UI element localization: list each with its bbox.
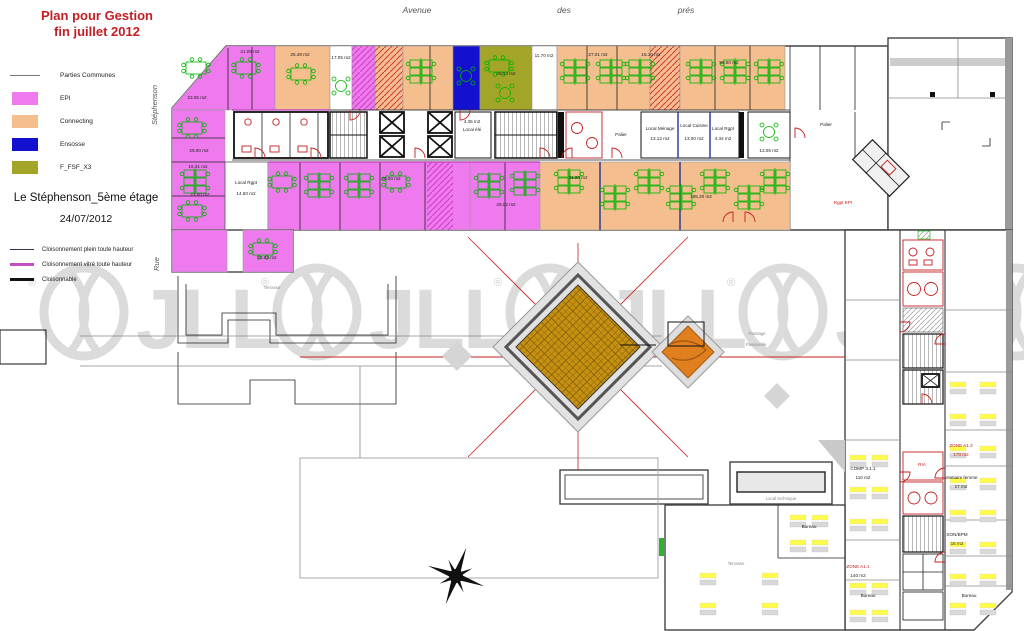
area-label: 25.13 m2 [496,71,516,76]
area-label: 13.00 m2 [684,136,704,141]
legend-item-ffsfx3: F_FSF_X3 [8,156,168,179]
area-label: Terrasse [728,561,745,566]
area-label: 21.05 m2 [240,49,260,54]
color-swatch [12,161,38,174]
stairs [903,334,943,368]
street-des: des [557,5,571,15]
registered-mark: ® [727,277,735,289]
local-rooms [641,112,739,158]
area-label: 17.05 m2 [331,55,351,60]
plan-title: Plan pour Gestion fin juillet 2012 [22,8,172,41]
area-label: COMP 3.1.1 [850,466,876,471]
room-ffsfx3 [480,46,532,110]
line-swatch [10,249,34,250]
small-gray-diamond [764,383,790,409]
area-label: 31.20 m2 [568,175,588,180]
area-label: 17 m2 [955,484,968,489]
top-wing [172,46,888,230]
building-title-block: Le Stéphenson_5ème étage 24/07/2012 [6,192,166,225]
legend-label: Parties Communes [60,72,115,79]
area-label: Bureau [861,593,876,598]
room-connecting-open-space [540,162,790,230]
area-label: Vestiaire femme [945,475,978,480]
legend-label: Ensosse [60,141,85,148]
left-wing [172,230,293,272]
area-label: 14.50 m2 [236,191,256,196]
area-label: ZONE A1.1 [846,564,870,569]
area-label: 11.70 m2 [535,53,554,58]
area-label: Local Rgpt [235,180,258,185]
top-right-block [888,38,1012,230]
legend-item-cloisonnement-plein: Cloisonnement plein toute hauteur [10,242,190,257]
area-label: Bureau [962,593,977,598]
line-swatch [10,263,34,266]
area-label: Local Cuisine [680,123,708,128]
room-epi [172,46,275,110]
building-name: Le Stéphenson_5ème étage [6,192,166,204]
elevator [428,136,452,157]
area-label: 16.10 m2 [641,52,661,57]
street-avenue: Avenue [402,5,432,15]
legend-label: Connecting [60,118,93,125]
watermark-text: JLL [369,272,512,366]
area-label: 23.05 m2 [187,95,207,100]
area-label: 110 m2 [856,475,871,480]
legend-label: Cloisonnement vitré toute hauteur [42,262,132,268]
partition-legend: Cloisonnement plein toute hauteur Cloiso… [10,242,190,287]
line-swatch [10,75,40,76]
area-label: Palier [820,122,832,127]
bottom-center-block [560,462,845,630]
legend-item-cloisonnable: Cloisonnable [10,272,190,287]
plan-date: 24/07/2012 [6,213,166,225]
elevator [428,112,452,133]
area-label: 4.35 m2 [464,119,481,124]
area-label: 25.48 m2 [290,52,310,57]
area-label: 28.02 m2 [496,202,516,207]
area-label: Local Rgpt [712,126,735,131]
registered-mark: ® [494,277,502,289]
color-swatch [12,115,38,128]
area-label: Terrasse [264,285,281,290]
legend-item-connecting: Connecting [8,110,168,133]
legend-label: Cloisonnement plein toute hauteur [42,247,133,253]
street-pres: prés [677,5,695,15]
area-label: Passage [748,331,766,336]
area-label: ZONE A1.3 [949,443,973,448]
color-swatch [12,138,38,151]
zone-legend: Parties Communes EPI Connecting Ensosse … [8,64,168,179]
legend-label: Cloisonnable [42,277,77,283]
area-label: 140 m2 [850,573,866,578]
area-label: Local élé [463,127,482,132]
area-label: Bureau [802,524,817,529]
floor-plan-page: JLL JLL JLL JLL ® ® ® ® ® Avenue des pré… [0,0,1024,631]
legend-item-parties-communes: Parties Communes [8,64,168,87]
elevator [380,136,404,157]
area-label: Passerelle [746,342,767,347]
right-wing [845,230,1012,630]
area-label: 170 m2 [953,452,969,457]
area-label: 13.05 m2 [759,148,779,153]
legend-item-epi: EPI [8,87,168,110]
area-label: 16 m2 [951,541,964,546]
legend-label: F_FSF_X3 [60,164,91,171]
area-label: 16.31 m2 [188,164,208,169]
area-label: Local Ménage [646,126,675,131]
area-label: 4.34 m2 [715,136,732,141]
plan-title-line2: fin juillet 2012 [22,24,172,40]
compass-icon [427,547,486,606]
line-swatch [10,278,34,281]
area-label: 23.02 m2 [257,255,277,260]
area-label: 21.00 m2 [190,192,210,197]
area-label: 25.00 m2 [381,176,401,181]
stairs [903,516,943,552]
legend-label: EPI [60,95,70,102]
color-swatch [12,92,38,105]
area-label: RIA [918,462,927,467]
plan-title-line1: Plan pour Gestion [22,8,172,24]
area-label: 165.20 m2 [690,194,712,199]
area-label: 29.00 m2 [189,148,209,153]
area-label: 50.60 m2 [719,60,739,65]
area-label: Palier [615,132,627,137]
legend-item-ensosse: Ensosse [8,133,168,156]
area-label: 13.12 m2 [650,136,670,141]
area-label: 27.01 m2 [588,52,608,57]
legend-item-cloisonnement-vitre: Cloisonnement vitré toute hauteur [10,257,190,272]
area-label: Rgpt EPI [834,200,852,205]
elevator [380,112,404,133]
area-label: SON/BPM [946,532,967,537]
room-ensosse [453,46,480,110]
area-label: Local technique [766,496,797,501]
